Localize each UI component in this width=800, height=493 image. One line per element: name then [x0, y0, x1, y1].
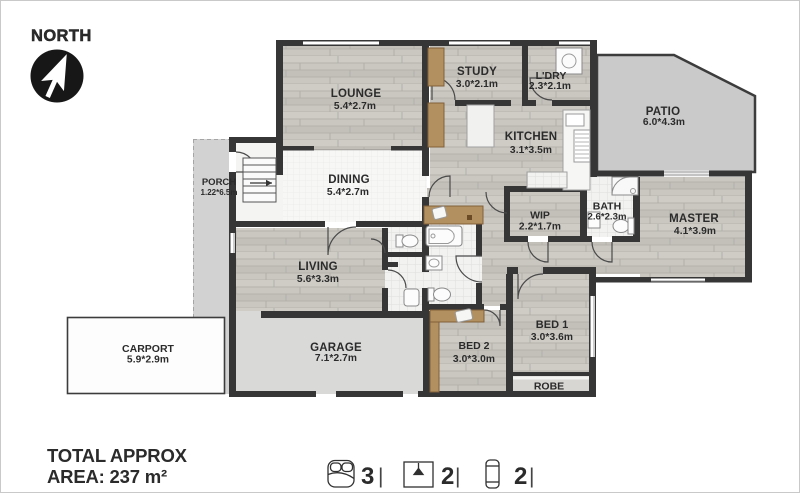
svg-text:2.6*2.3m: 2.6*2.3m — [588, 212, 627, 223]
svg-text:NORTH: NORTH — [31, 27, 92, 45]
svg-text:STUDY: STUDY — [457, 66, 497, 78]
svg-text:MASTER: MASTER — [669, 213, 719, 225]
svg-text:CARPORT: CARPORT — [122, 343, 175, 355]
svg-text:5.9*2.9m: 5.9*2.9m — [127, 355, 169, 366]
svg-text:|: | — [378, 465, 383, 488]
svg-text:1.22*6.5m: 1.22*6.5m — [201, 188, 238, 197]
svg-text:2: 2 — [441, 463, 454, 490]
svg-text:7.1*2.7m: 7.1*2.7m — [315, 353, 357, 364]
svg-text:2.3*2.1m: 2.3*2.1m — [529, 81, 571, 92]
svg-text:BED 1: BED 1 — [536, 319, 568, 331]
svg-text:3.1*3.5m: 3.1*3.5m — [510, 145, 552, 156]
svg-text:BED 2: BED 2 — [459, 340, 490, 352]
svg-text:KITCHEN: KITCHEN — [505, 131, 558, 143]
svg-text:3.0*3.6m: 3.0*3.6m — [531, 332, 573, 343]
svg-text:PORCH: PORCH — [202, 177, 236, 188]
svg-text:3: 3 — [361, 463, 374, 490]
svg-text:3.0*3.0m: 3.0*3.0m — [453, 354, 495, 365]
svg-text:4.1*3.9m: 4.1*3.9m — [674, 226, 716, 237]
svg-text:|: | — [455, 465, 460, 488]
svg-text:5.6*3.3m: 5.6*3.3m — [297, 274, 339, 285]
svg-text:ROBE: ROBE — [534, 381, 564, 393]
svg-text:AREA: 237 m²: AREA: 237 m² — [47, 466, 167, 487]
svg-text:DINING: DINING — [328, 174, 369, 186]
svg-text:5.4*2.7m: 5.4*2.7m — [327, 187, 369, 198]
svg-text:2: 2 — [514, 463, 527, 490]
svg-text:6.0*4.3m: 6.0*4.3m — [643, 117, 685, 128]
svg-text:3.0*2.1m: 3.0*2.1m — [456, 79, 498, 90]
svg-text:WIP: WIP — [530, 210, 550, 222]
svg-text:LOUNGE: LOUNGE — [331, 88, 382, 100]
svg-text:LIVING: LIVING — [298, 261, 338, 273]
svg-text:2.2*1.7m: 2.2*1.7m — [519, 222, 561, 233]
svg-text:5.4*2.7m: 5.4*2.7m — [334, 101, 376, 112]
svg-text:|: | — [529, 465, 534, 488]
svg-text:TOTAL APPROX: TOTAL APPROX — [47, 445, 188, 466]
